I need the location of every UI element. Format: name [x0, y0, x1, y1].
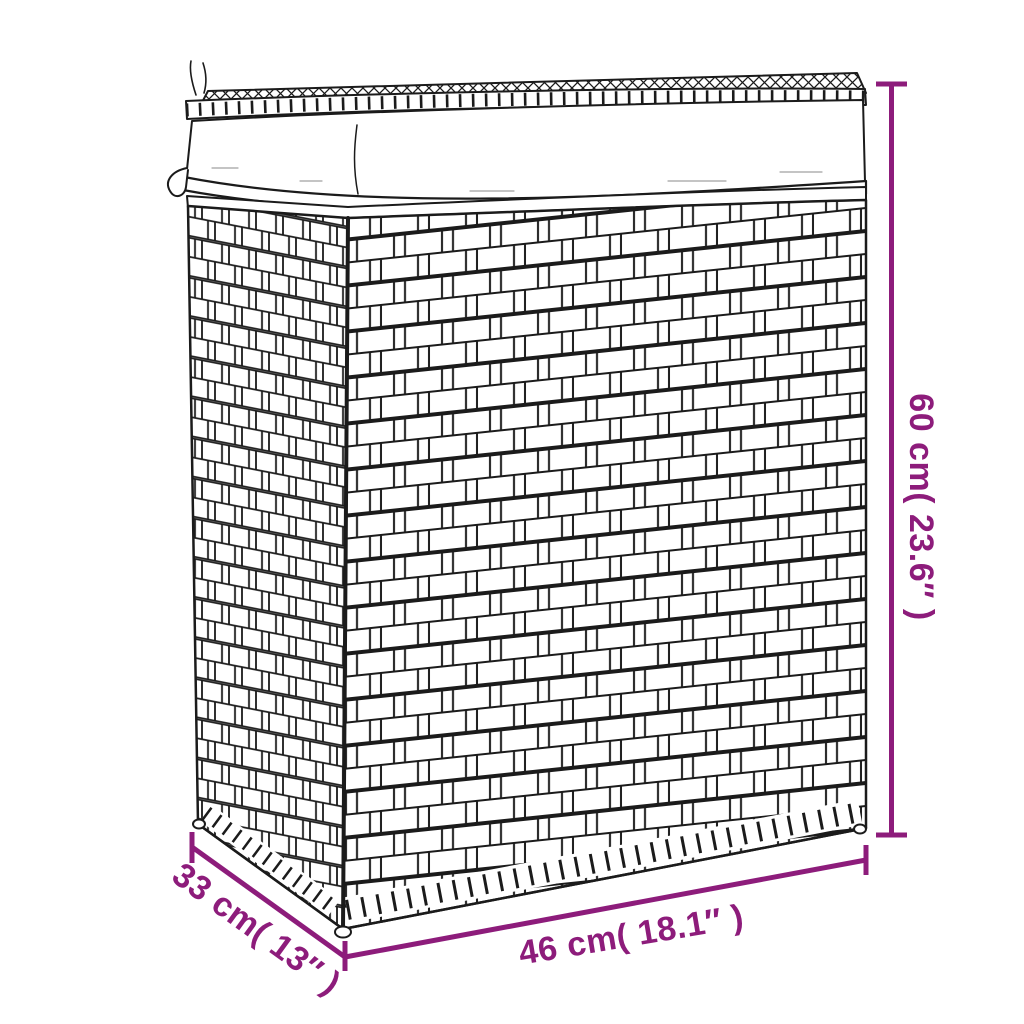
basket-drawing [168, 61, 866, 938]
product-dimension-diagram: 60 cm( 23.6″ ) 46 cm( 18.1″ ) 33 cm( 13″… [0, 0, 1024, 1024]
foot-left [193, 820, 205, 829]
height-dimension-label: 60 cm( 23.6″ ) [902, 393, 940, 620]
liner-cords [190, 61, 205, 95]
foot-corner [335, 927, 351, 938]
liner-tie-loop [168, 168, 188, 196]
foot-right [854, 825, 866, 834]
laundry-basket-dimension-drawing: 60 cm( 23.6″ ) 46 cm( 18.1″ ) 33 cm( 13″… [0, 0, 1024, 1024]
width-dimension-label: 46 cm( 18.1″ ) [516, 898, 747, 973]
liner-fabric [186, 100, 865, 200]
